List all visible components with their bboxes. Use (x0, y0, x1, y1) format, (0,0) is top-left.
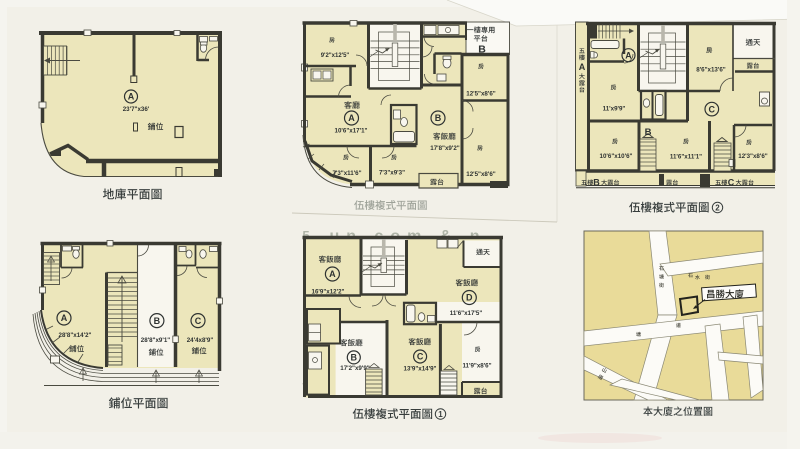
svg-text:C: C (417, 352, 424, 362)
svg-text:24'4x8'9": 24'4x8'9" (187, 337, 214, 344)
svg-text:7'3"x9'3": 7'3"x9'3" (379, 170, 405, 177)
svg-text:C: C (195, 316, 202, 326)
svg-text:2: 2 (715, 204, 720, 213)
svg-text:12'3"x8'6": 12'3"x8'6" (738, 153, 768, 160)
svg-text:D: D (466, 293, 473, 303)
svg-text:13'9"x14'9": 13'9"x14'9" (404, 366, 437, 373)
svg-text:C: C (709, 104, 716, 114)
svg-text:B: B (593, 177, 600, 187)
svg-text:8'6"x13'6": 8'6"x13'6" (696, 67, 726, 74)
svg-text:23'7"x36': 23'7"x36' (123, 106, 150, 113)
svg-text:11'x9'9": 11'x9'9" (603, 106, 626, 113)
svg-text:B: B (435, 113, 442, 123)
svg-text:11'6"x11'1": 11'6"x11'1" (670, 154, 702, 161)
svg-text:10'6"x10'6": 10'6"x10'6" (600, 153, 633, 160)
svg-text:B: B (478, 44, 486, 56)
svg-text:7'3"x11'6": 7'3"x11'6" (332, 170, 361, 177)
svg-text:28'8"x9'1": 28'8"x9'1" (141, 337, 171, 344)
svg-text:A: A (128, 92, 135, 102)
svg-text:A: A (348, 113, 355, 123)
svg-text:11'6"x17'5": 11'6"x17'5" (450, 310, 483, 317)
svg-text:C: C (728, 177, 735, 187)
svg-text:A: A (579, 62, 586, 72)
svg-text:12'5"x8'6": 12'5"x8'6" (466, 171, 496, 178)
svg-text:9'2"x12'5": 9'2"x12'5" (321, 53, 350, 59)
svg-text:1: 1 (438, 410, 443, 419)
svg-text:B: B (645, 127, 652, 138)
svg-text:17'8"x9'2": 17'8"x9'2" (430, 145, 460, 152)
svg-text:B: B (351, 353, 358, 363)
svg-text:12'5"x8'6": 12'5"x8'6" (466, 91, 496, 98)
svg-text:10'6"x17'1": 10'6"x17'1" (335, 128, 368, 135)
svg-text:A: A (329, 269, 336, 279)
svg-text:28'8"x14'2": 28'8"x14'2" (59, 332, 92, 339)
svg-text:A: A (61, 313, 68, 323)
svg-text:11'9"x8'6": 11'9"x8'6" (462, 363, 491, 370)
svg-text:B: B (154, 316, 161, 326)
svg-text:A: A (625, 50, 632, 60)
